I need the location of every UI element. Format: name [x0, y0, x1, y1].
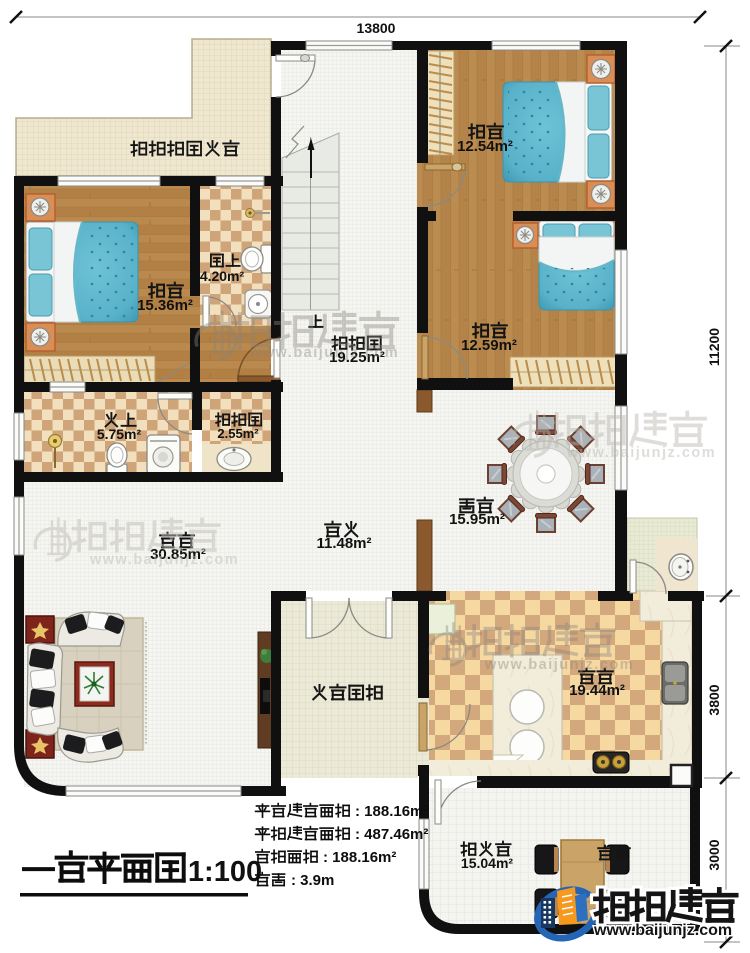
svg-text:19.44m²: 19.44m²	[569, 682, 625, 699]
svg-text:12.59m²: 12.59m²	[461, 337, 517, 354]
svg-text:3800: 3800	[706, 684, 722, 715]
svg-text:12.54m²: 12.54m²	[457, 138, 513, 155]
svg-text:www.baijunjz.com: www.baijunjz.com	[566, 445, 716, 461]
svg-text:www.baijunjz.com: www.baijunjz.com	[249, 345, 399, 361]
svg-text:5.75m²: 5.75m²	[97, 426, 142, 442]
svg-text:15.04m²: 15.04m²	[461, 855, 513, 871]
svg-text:1:100: 1:100	[188, 856, 262, 888]
svg-text:4.20m²: 4.20m²	[200, 268, 245, 284]
svg-text:15.36m²: 15.36m²	[137, 297, 193, 314]
svg-text:www.baijunjz.com: www.baijunjz.com	[484, 657, 634, 673]
svg-text:2.55m²: 2.55m²	[217, 426, 259, 441]
svg-text:: 487.46m²: : 487.46m²	[355, 826, 428, 843]
svg-text:3000: 3000	[706, 839, 722, 870]
svg-text:: 3.9m: : 3.9m	[291, 872, 334, 889]
svg-text:: 188.16m²: : 188.16m²	[355, 803, 428, 820]
svg-text:13800: 13800	[357, 20, 396, 36]
svg-text:11200: 11200	[706, 328, 722, 366]
svg-text:: 188.16m²: : 188.16m²	[323, 849, 396, 866]
svg-text:15.95m²: 15.95m²	[449, 511, 505, 528]
svg-text:www.baijunjz.com: www.baijunjz.com	[593, 922, 732, 939]
svg-text:11.48m²: 11.48m²	[316, 535, 371, 552]
svg-text:www.baijunjz.com: www.baijunjz.com	[89, 552, 239, 568]
